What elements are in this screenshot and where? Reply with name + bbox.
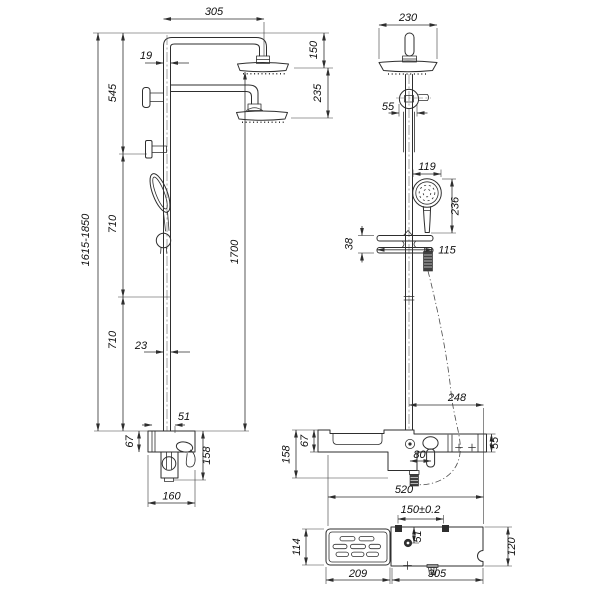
wall-bracket-side [396,89,431,108]
mixer-body-side [318,430,487,486]
dim-side-hand-shower-dia: 119 [418,161,436,173]
spray-face-pattern [419,185,435,201]
mounting-hole-square [442,525,449,532]
dim-bottom-tray-width: 209 [348,568,367,580]
dim-front-pipe-top: 19 [140,50,152,62]
dim-front-overall-range: 1615-1850 [80,213,92,266]
dim-front-riser-length: 1700 [229,239,241,264]
dim-side-handle-offset: 80 [413,449,426,461]
shelf-tray-front [333,434,382,445]
mounting-plate [391,527,483,566]
hand-shower-side [413,179,442,233]
dim-front-body-width: 160 [162,491,181,503]
dim-side-head-width: 230 [398,12,418,24]
diverter-knob [143,88,164,108]
mixer-handle-side [423,437,438,449]
dim-side-body-width: 520 [395,484,414,496]
dim-bottom-plate-depth: 120 [506,536,518,555]
dim-side-hand-shower-len: 236 [450,196,462,216]
dim-front-seg-upper: 710 [107,214,119,233]
mounting-hole-square [395,525,402,532]
dim-side-hole-pitch: 150±0.2 [401,504,441,516]
dim-front-body-offset: 51 [178,411,190,423]
dim-bottom-hole-inset: 51 [412,530,424,542]
mixer-handle [176,441,194,454]
center-mark [404,562,412,570]
front-view [93,33,329,482]
side-view [318,33,487,486]
dim-front-seg-lower: 710 [107,330,119,349]
tray-drain-slots [333,537,381,557]
front-view-dimensions: 305 19 545 710 710 1615-1850 1700 150 23… [80,6,333,507]
dim-side-bracket-width: 55 [382,101,395,113]
hose-outlet-nut [410,471,420,475]
dim-bottom-plate-width: 305 [428,568,447,580]
overhead-shower-head-upper [238,56,289,74]
spray-face-pattern [423,189,431,197]
mixer-body-front [148,431,195,482]
dim-side-slider-width: 115 [438,245,456,257]
dim-side-end-height: 55 [489,436,501,449]
dim-side-right-span: 248 [447,392,467,404]
riser-pipe-side [404,74,415,430]
shower-arm-joint [405,33,414,56]
bottom-view-dimensions: 114 120 51 209 305 [291,527,518,584]
dim-front-top-to-bracket: 545 [107,83,119,102]
dim-front-arm-span: 305 [205,6,224,18]
overhead-shower-head-lower [237,104,288,122]
dim-side-body-height: 158 [281,444,293,463]
dim-front-pipe-lower: 23 [134,340,148,352]
hand-shower-handle [164,212,170,232]
dim-bottom-tray-depth: 114 [291,538,303,556]
mixer-handle-lever [186,450,195,467]
screw-mark [469,444,476,451]
dim-front-head1-drop: 150 [308,40,320,59]
technical-drawing-page: 305 19 545 710 710 1615-1850 1700 150 23… [0,0,600,600]
shower-head-disc [379,61,437,72]
dim-front-body-top-height: 67 [124,435,136,448]
dim-side-body-top-height: 67 [299,434,311,447]
diverter-dial [162,457,176,471]
dim-front-head2-drop: 235 [312,83,324,103]
screw-mark [456,444,463,451]
dim-front-body-height: 158 [201,445,213,464]
dim-side-slider-height: 38 [344,237,356,250]
overhead-shower-side [379,33,437,74]
shower-system-drawing: 305 19 545 710 710 1615-1850 1700 150 23… [0,0,600,600]
spout-tip [165,478,174,482]
hand-shower-front [146,171,174,253]
